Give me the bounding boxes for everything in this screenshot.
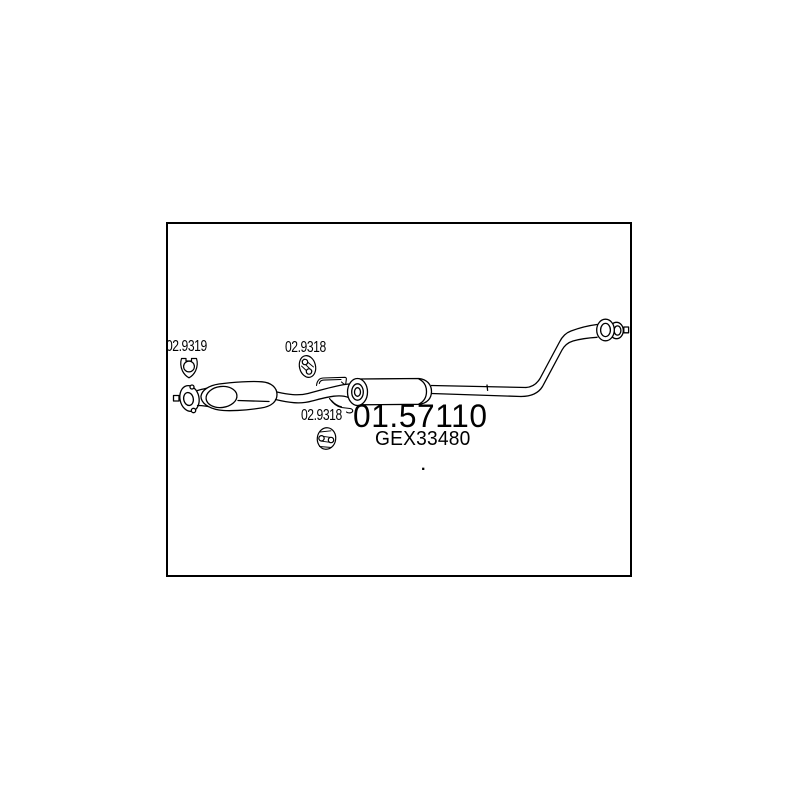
front-muffler bbox=[201, 382, 277, 411]
label-front-hanger-partnumber: 02.9318 bbox=[285, 340, 326, 356]
rubber-hanger-icon bbox=[316, 427, 337, 451]
flange-gasket-icon bbox=[181, 359, 197, 378]
tailpipe-end bbox=[597, 319, 629, 341]
label-flange-gasket-partnumber: 02.9319 bbox=[166, 339, 207, 355]
separator-dot: . bbox=[421, 458, 425, 474]
hanger-rod-top bbox=[317, 377, 347, 385]
front-flange bbox=[174, 384, 202, 413]
rear-pipe bbox=[432, 325, 598, 397]
label-rear-hanger-partnumber: 02.9318 bbox=[301, 408, 342, 424]
rubber-hanger-icon bbox=[297, 354, 318, 379]
catalog-image: 02.9319 02.9318 02.9318 01.57110 GEX3348… bbox=[0, 0, 800, 800]
connecting-pipe bbox=[276, 384, 349, 403]
oem-reference-number: GEX33480 bbox=[375, 429, 470, 449]
